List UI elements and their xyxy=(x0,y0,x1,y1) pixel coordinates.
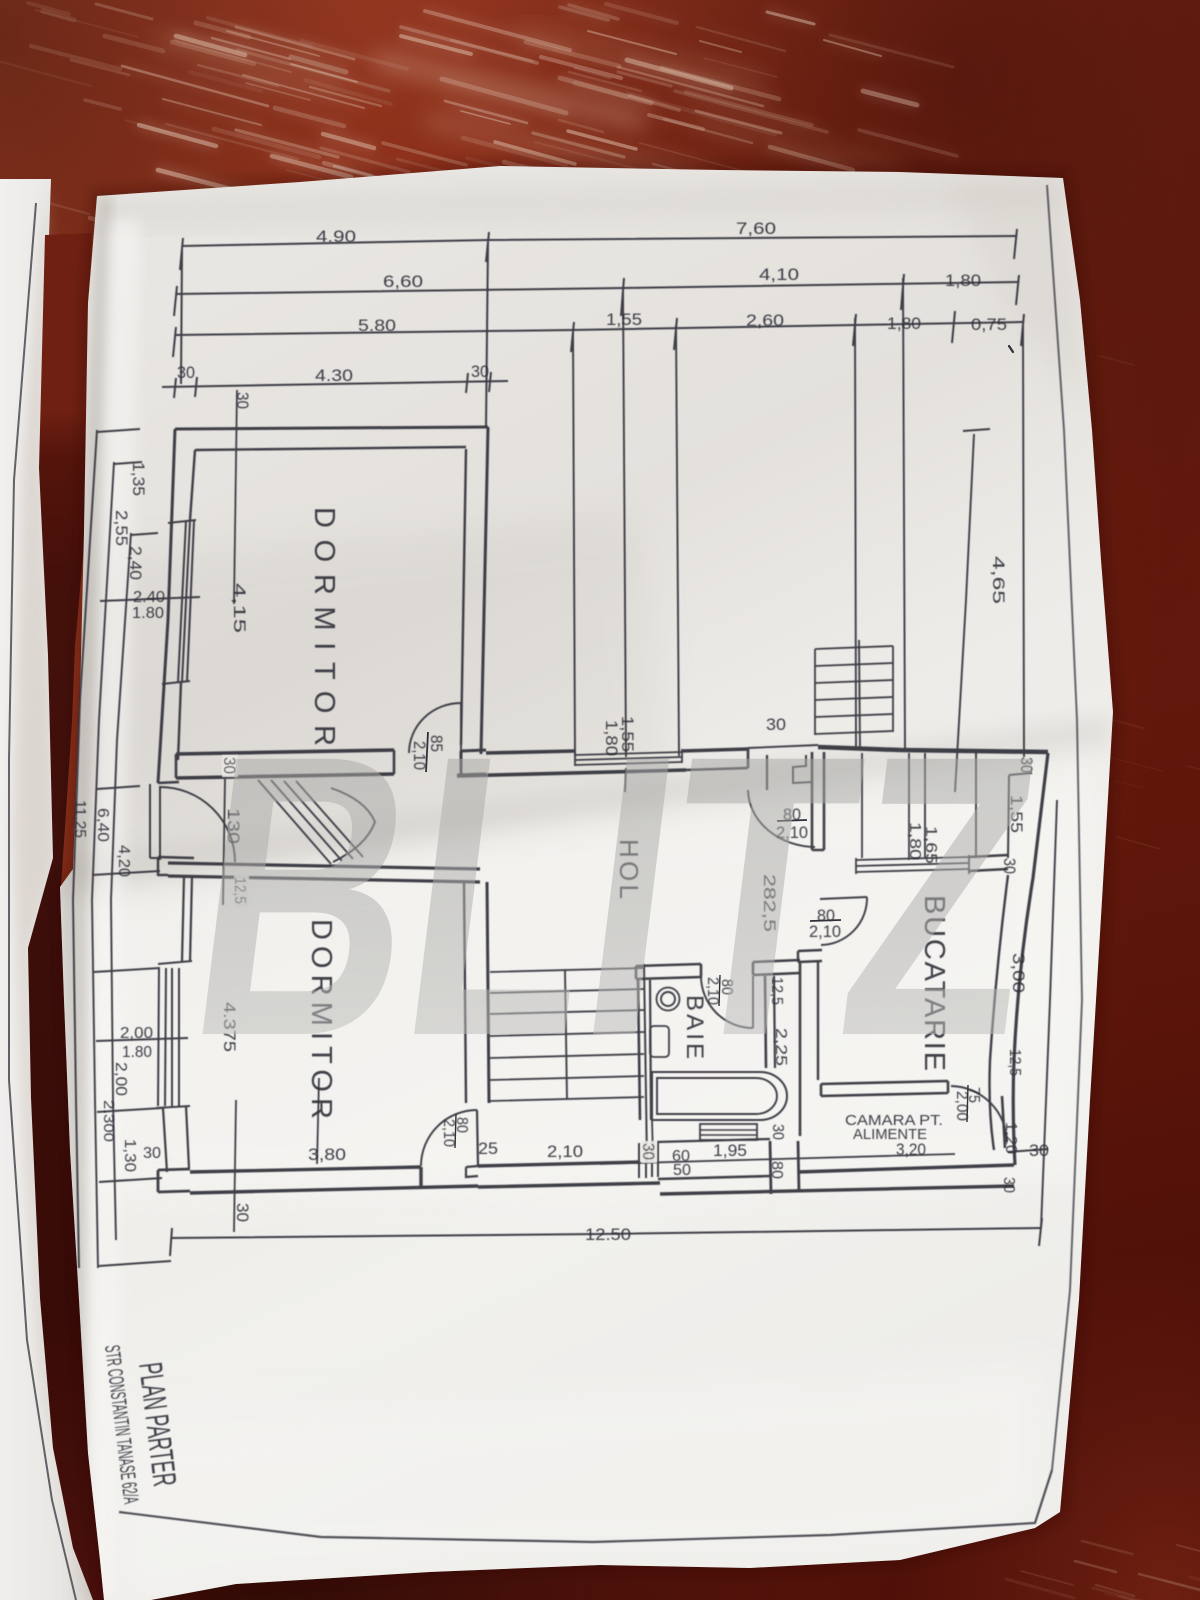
svg-text:30: 30 xyxy=(233,392,252,409)
svg-text:4,20: 4,20 xyxy=(115,845,132,877)
svg-text:1.80: 1.80 xyxy=(122,1044,152,1061)
svg-text:1,95: 1,95 xyxy=(713,1141,747,1160)
svg-text:0,75: 0,75 xyxy=(971,315,1007,334)
svg-text:5.80: 5.80 xyxy=(358,316,396,335)
svg-text:30: 30 xyxy=(1029,1141,1049,1160)
svg-text:6,60: 6,60 xyxy=(383,272,423,291)
svg-text:4.90: 4.90 xyxy=(316,227,356,246)
svg-text:30: 30 xyxy=(639,1143,658,1160)
svg-text:4,10: 4,10 xyxy=(759,265,799,284)
svg-text:3,20: 3,20 xyxy=(896,1140,926,1159)
svg-text:30: 30 xyxy=(1000,1177,1017,1193)
svg-text:4.30: 4.30 xyxy=(315,366,353,385)
svg-text:1,80: 1,80 xyxy=(945,271,981,290)
svg-text:6,40: 6,40 xyxy=(94,808,111,842)
svg-text:2,00: 2,00 xyxy=(112,1062,129,1096)
svg-text:2,55: 2,55 xyxy=(112,510,131,546)
svg-text:30: 30 xyxy=(769,1124,786,1140)
svg-text:25: 25 xyxy=(478,1139,498,1158)
svg-text:7,60: 7,60 xyxy=(736,219,776,238)
svg-text:2,00: 2,00 xyxy=(120,1025,153,1042)
svg-text:30: 30 xyxy=(233,1203,252,1222)
svg-text:2,40: 2,40 xyxy=(126,546,145,580)
svg-text:1.80: 1.80 xyxy=(132,605,164,622)
svg-text:1,80: 1,80 xyxy=(887,314,921,333)
svg-text:2.300: 2.300 xyxy=(100,1100,117,1142)
svg-text:12.50: 12.50 xyxy=(585,1225,631,1244)
svg-text:30: 30 xyxy=(471,362,489,381)
svg-text:30: 30 xyxy=(177,363,195,382)
svg-text:50: 50 xyxy=(673,1162,691,1179)
svg-text:1,20: 1,20 xyxy=(1002,1122,1019,1154)
svg-text:11,25: 11,25 xyxy=(71,800,88,838)
svg-text:1,35: 1,35 xyxy=(129,462,148,496)
svg-text:2,10: 2,10 xyxy=(547,1142,583,1161)
svg-text:2,60: 2,60 xyxy=(746,311,784,330)
svg-text:30: 30 xyxy=(143,1145,161,1162)
svg-text:1,30: 1,30 xyxy=(121,1139,138,1172)
svg-text:80: 80 xyxy=(768,1161,785,1179)
svg-text:1,55: 1,55 xyxy=(606,310,642,329)
svg-text:BLITZ: BLITZ xyxy=(172,673,1057,1119)
svg-text:4,65: 4,65 xyxy=(989,556,1008,604)
svg-text:2.40: 2.40 xyxy=(133,589,165,606)
svg-text:4,15: 4,15 xyxy=(230,583,249,633)
svg-text:2,10: 2,10 xyxy=(440,1119,457,1147)
svg-text:3,80: 3,80 xyxy=(308,1145,346,1164)
